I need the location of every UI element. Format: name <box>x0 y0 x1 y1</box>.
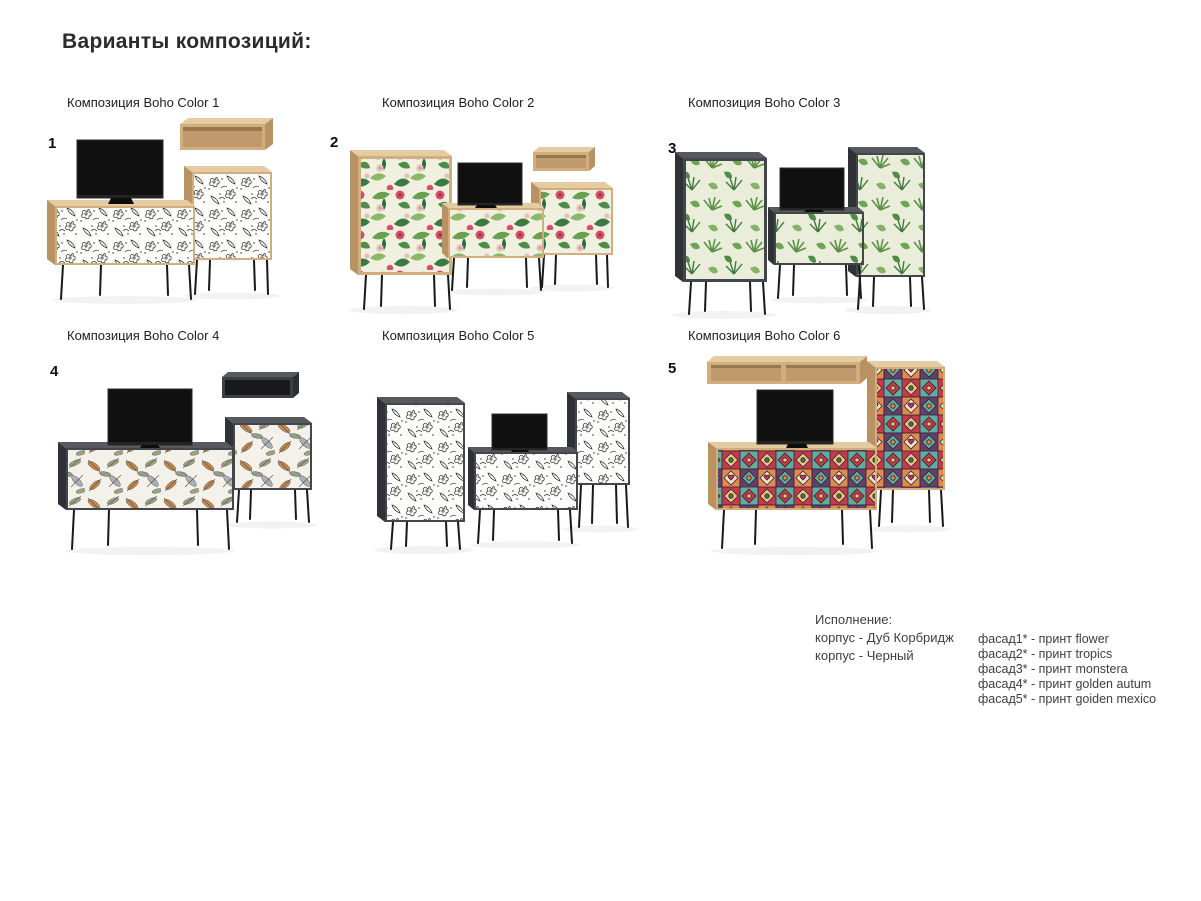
tall-cabinet-left <box>675 152 767 314</box>
composition-1-label: Композиция Boho Color 1 <box>67 95 219 110</box>
composition-5: Композиция Boho Color 5 <box>340 328 640 566</box>
tv-stand <box>442 203 544 290</box>
cabinet <box>225 417 312 522</box>
composition-4-illustration <box>47 343 332 563</box>
tv-stand <box>468 447 578 543</box>
tall-cabinet-left <box>377 397 465 549</box>
tv <box>458 163 522 208</box>
legend-body-line: корпус - Черный <box>815 647 954 665</box>
tv <box>780 168 844 212</box>
cabinet <box>867 361 945 526</box>
wall-shelf <box>222 372 299 398</box>
composition-2: Композиция Boho Color 2 2 <box>330 95 620 317</box>
wall-shelf <box>707 356 867 384</box>
composition-6: Композиция Boho Color 6 5 <box>650 328 960 566</box>
composition-5-illustration <box>340 343 640 563</box>
tv-stand <box>768 207 864 298</box>
composition-1: Композиция Boho Color 1 1 <box>47 95 327 317</box>
composition-6-illustration <box>650 343 960 563</box>
cabinet <box>184 166 272 294</box>
legend-title: Исполнение: <box>815 611 954 629</box>
wall-shelf <box>533 147 595 171</box>
legend-facade-line: фасад3* - принт monstera <box>978 662 1156 677</box>
legend-body: Исполнение: корпус - Дуб Корбридж корпус… <box>815 611 954 665</box>
legend-facades: фасад1* - принт flower фасад2* - принт t… <box>978 632 1156 707</box>
legend-facade-line: фасад1* - принт flower <box>978 632 1156 647</box>
composition-3: Композиция Boho Color 3 3 <box>660 95 950 323</box>
composition-3-label: Композиция Boho Color 3 <box>688 95 840 110</box>
composition-4: Композиция Boho Color 4 4 <box>47 328 332 566</box>
composition-1-illustration <box>47 110 327 315</box>
composition-5-label: Композиция Boho Color 5 <box>382 328 534 343</box>
tv <box>108 389 192 448</box>
tv <box>492 414 547 452</box>
composition-6-label: Композиция Boho Color 6 <box>688 328 840 343</box>
composition-2-illustration <box>330 110 620 315</box>
legend-facade-line: фасад4* - принт golden autum <box>978 677 1156 692</box>
legend-facade-line: фасад5* - принт goiden mexico <box>978 692 1156 707</box>
page-title: Варианты композиций: <box>62 30 312 54</box>
composition-3-illustration <box>660 110 950 320</box>
tv-stand <box>47 200 195 299</box>
composition-4-label: Композиция Boho Color 4 <box>67 328 219 343</box>
tv <box>757 390 833 448</box>
tv-stand <box>58 442 234 549</box>
tv-stand <box>708 442 877 548</box>
tall-cabinet <box>350 150 452 309</box>
wall-shelf <box>180 118 273 150</box>
legend-facade-line: фасад2* - принт tropics <box>978 647 1156 662</box>
legend-body-line: корпус - Дуб Корбридж <box>815 629 954 647</box>
composition-2-label: Композиция Boho Color 2 <box>382 95 534 110</box>
tv <box>77 140 163 204</box>
